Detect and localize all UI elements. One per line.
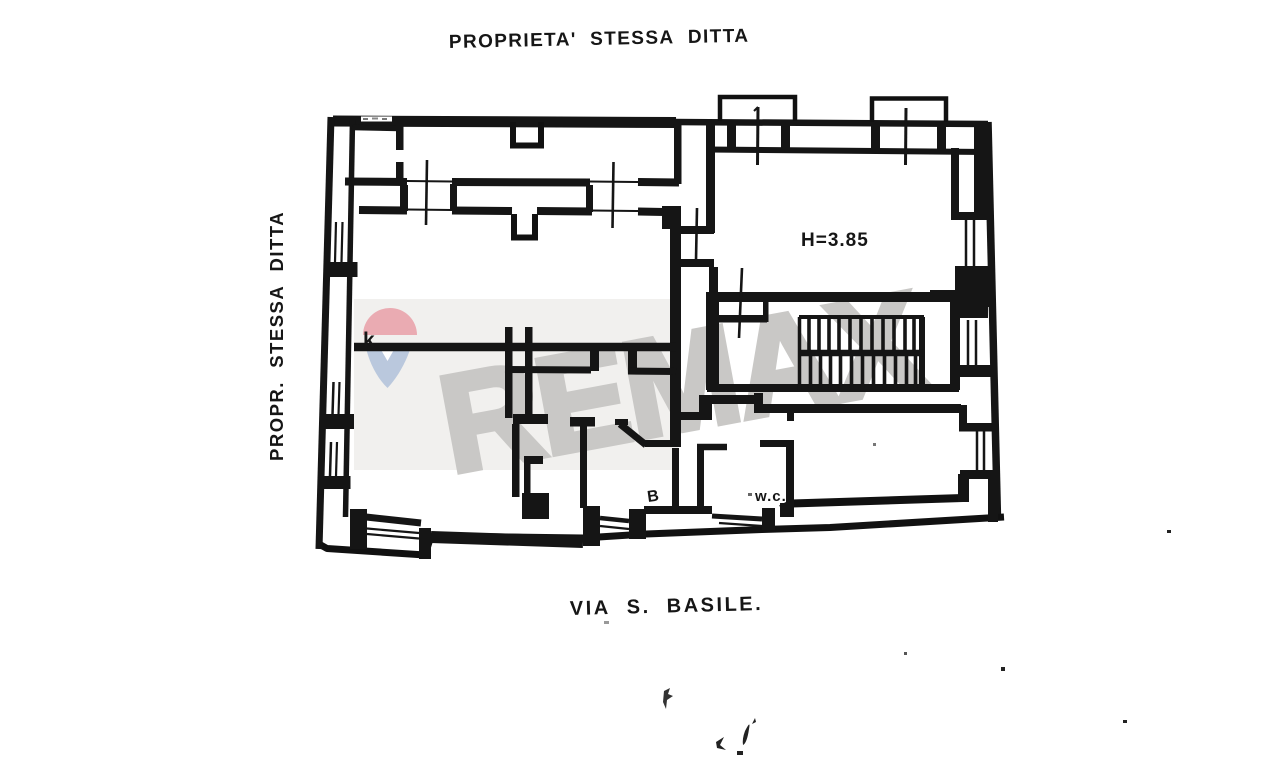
svg-text:VIA S. BASILE.: VIA S. BASILE. [570, 593, 764, 620]
svg-text:B: B [646, 488, 660, 506]
svg-text:k: k [363, 329, 375, 352]
svg-text:H=3.85: H=3.85 [801, 230, 869, 251]
svg-text:PROPRIETA' STESSA DITTA: PROPRIETA' STESSA DITTA [449, 26, 750, 53]
svg-text:w.c.: w.c. [754, 488, 787, 505]
svg-text:PROPR. STESSA DITTA: PROPR. STESSA DITTA [266, 211, 287, 461]
